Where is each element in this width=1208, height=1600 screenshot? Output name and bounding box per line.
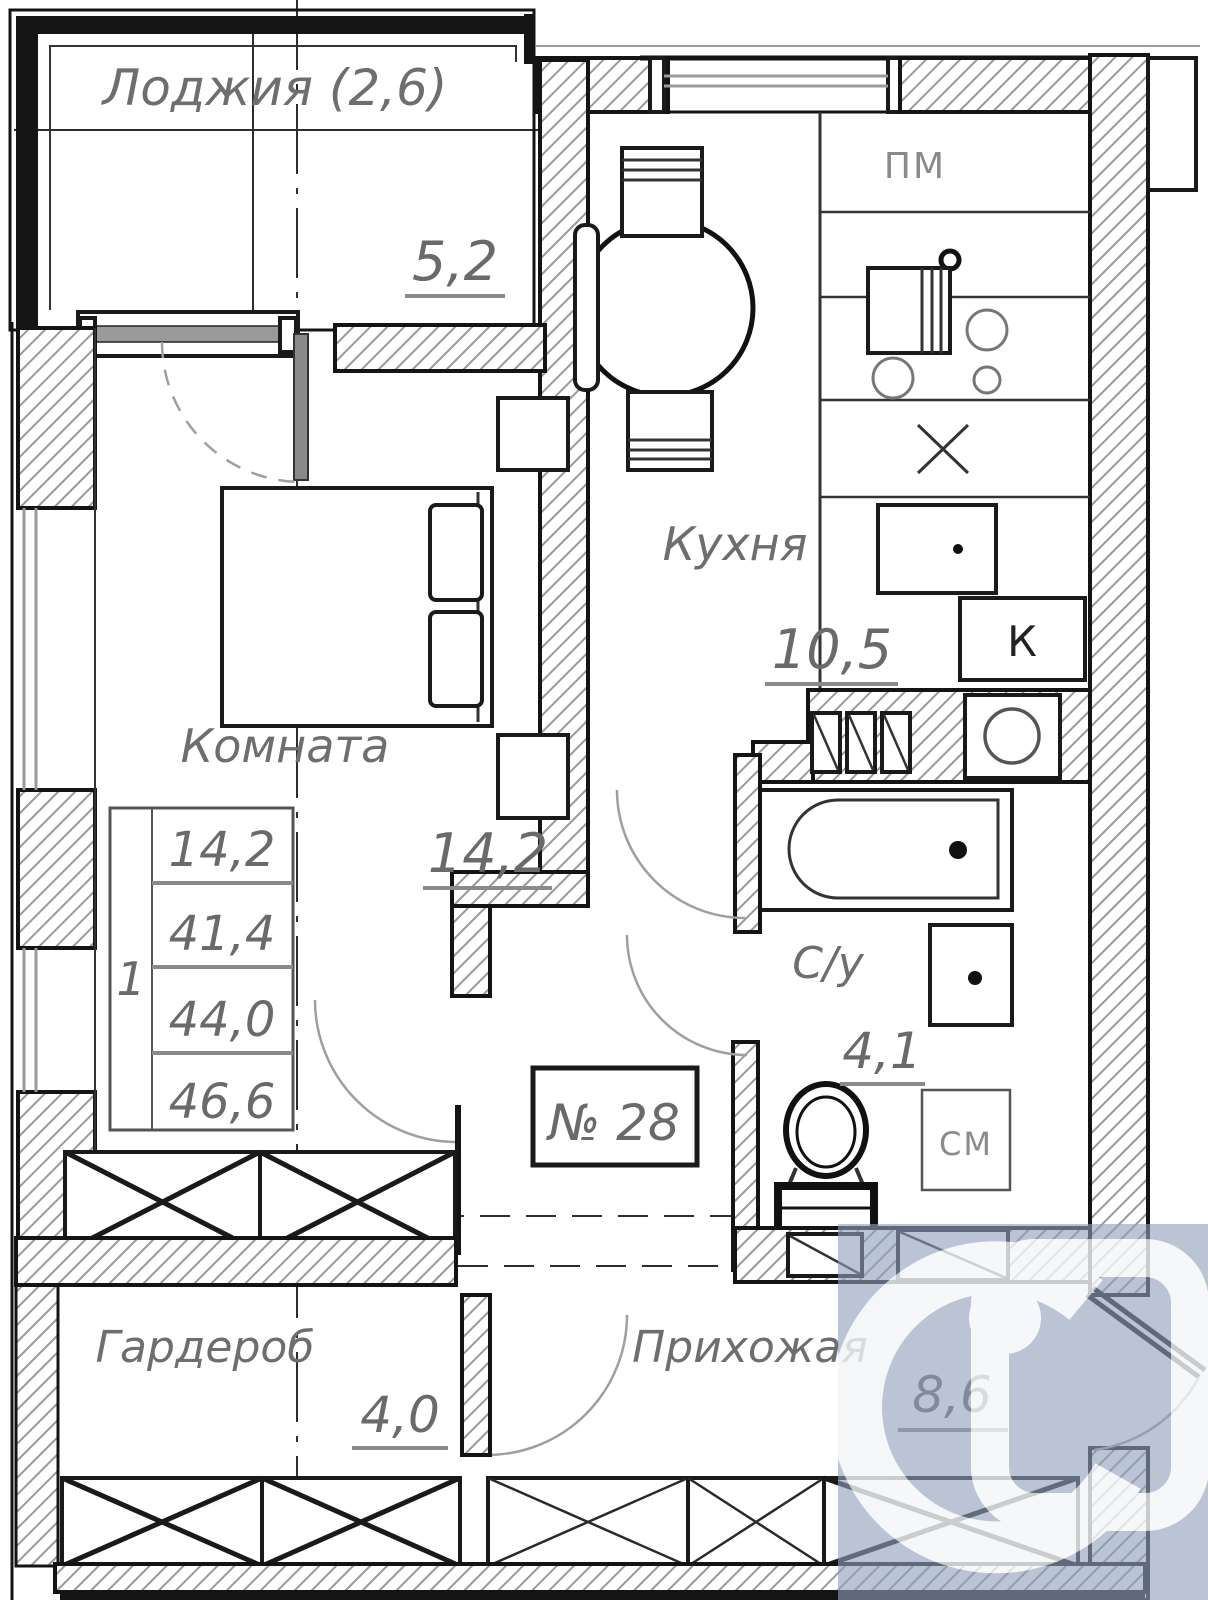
left-pier-4: [16, 1283, 58, 1566]
area-table-row-3: 44,0: [169, 992, 276, 1048]
room-label-bathroom: С/у: [792, 938, 865, 989]
burner-2: [967, 310, 1007, 350]
balcony-door-swing: [162, 342, 302, 482]
room-area-bathroom: 4,1: [842, 1022, 922, 1080]
living-door-swing: [315, 1000, 457, 1142]
chair-right: [868, 268, 950, 353]
kitchen-door-swing: [617, 790, 745, 918]
room-label-kitchen: Кухня: [663, 517, 808, 571]
loggia-right-cap: [524, 14, 534, 64]
bathroom-top-wall: [753, 690, 1090, 782]
kitchen-appliances: ПМ К: [820, 112, 1090, 690]
boiler-label: К: [1007, 617, 1037, 666]
bathroom-door-swing: [627, 935, 747, 1055]
area-table: 1 14,2 41,4 44,0 46,6: [110, 808, 293, 1130]
left-outer-wall: [12, 322, 95, 1600]
room-label-loggia: Лоджия (2,6): [101, 59, 448, 117]
floor-plan: ПМ К СМ: [0, 0, 1208, 1600]
area-table-row-1: 14,2: [169, 822, 276, 878]
apartment-number-box: № 28: [533, 1068, 697, 1165]
room-label-living: Комната: [181, 719, 390, 773]
bath-door-jamb-top: [735, 755, 760, 932]
dining-set: [575, 148, 950, 470]
wall-below-loggia: [335, 325, 545, 371]
washer-label: СМ: [939, 1125, 993, 1163]
chair-left: [575, 225, 598, 390]
right-top-block: [1148, 58, 1196, 190]
balcony-door-leaf: [294, 334, 308, 480]
wardrobe-door-jamb: [462, 1295, 490, 1455]
room-label-wardrobe: Гардероб: [96, 1322, 315, 1373]
bathtub-drain: [949, 841, 967, 859]
fridge: [878, 505, 996, 593]
washbasin-drain: [968, 971, 982, 985]
nightstand-2: [498, 735, 568, 818]
bathroom: СМ: [733, 755, 1012, 1270]
burner-4: [974, 367, 1000, 393]
burner-3: [873, 358, 913, 398]
left-pier-2: [18, 790, 95, 948]
room-area-loggia: 5,2: [412, 230, 498, 293]
balcony-window-unit: [78, 312, 308, 482]
nightstand-1: [498, 398, 568, 470]
pillow-2: [430, 612, 482, 706]
room-area-living: 14,2: [428, 822, 548, 885]
loggia-top-wall: [16, 16, 534, 34]
kitchen-wall-right-segment: [900, 58, 1090, 112]
logo-dot: [969, 1282, 1041, 1354]
kitchen-window-cap-left: [650, 58, 664, 112]
sink-cross-icon: [918, 425, 968, 473]
room-door-jamb: [452, 906, 490, 996]
watermark: [838, 1224, 1208, 1600]
right-wall-upper: [1090, 55, 1148, 1295]
wall-room-wardrobe: [16, 1238, 456, 1285]
room-area-wardrobe: 4,0: [360, 1386, 440, 1444]
floor-plan-drawing: ПМ К СМ: [0, 0, 1208, 1600]
area-table-row-4: 46,6: [169, 1074, 276, 1130]
loggia-left-wall: [16, 16, 38, 334]
bathtub-outer: [760, 790, 1012, 910]
apartment-number: № 28: [545, 1094, 680, 1152]
left-pier-1: [18, 328, 95, 508]
dishwasher-label: ПМ: [884, 146, 946, 187]
pillow-1: [430, 505, 482, 600]
wardrobe-door-swing: [487, 1315, 627, 1455]
area-table-row-2: 41,4: [169, 906, 276, 962]
room-label-hallway: Прихожая: [632, 1322, 868, 1373]
area-table-index: 1: [116, 952, 145, 1006]
dining-table: [577, 220, 753, 396]
room-area-kitchen: 10,5: [772, 618, 892, 681]
window-glass: [92, 326, 282, 342]
fridge-handle: [953, 544, 963, 554]
